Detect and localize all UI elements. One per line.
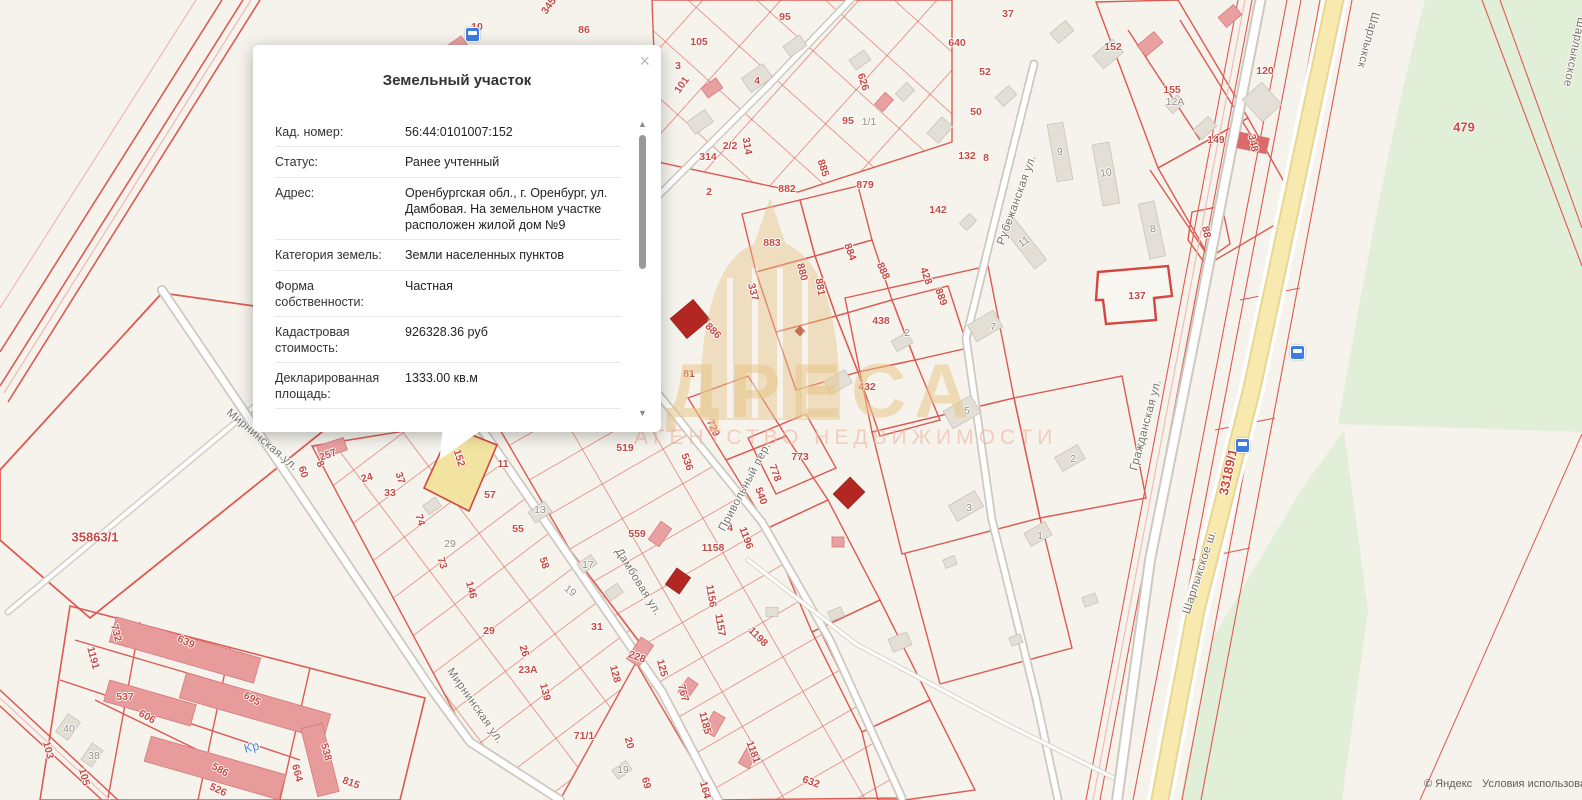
- field-value: 926328.36 руб: [405, 324, 621, 356]
- field-value: Частная: [405, 278, 621, 310]
- popup-field-row: Декларированная площадь:1333.00 кв.м: [275, 363, 621, 409]
- parcel-info-popup: Земельный участок × Кад. номер:56:44:010…: [253, 45, 661, 432]
- terms-link[interactable]: Условия использования: [1482, 778, 1582, 790]
- bus-stop-icon[interactable]: [1235, 438, 1250, 453]
- copyright-text: © Яндекс: [1424, 778, 1472, 790]
- popup-scrollbar[interactable]: ▲ ▼: [637, 119, 648, 418]
- map-attribution: © ЯндексУсловия использования: [1424, 778, 1582, 790]
- bus-stop-icon[interactable]: [465, 27, 480, 42]
- popup-field-row: Форма собственности:Частная: [275, 271, 621, 317]
- popup-field-list: Кад. номер:56:44:0101007:152Статус:Ранее…: [275, 117, 621, 409]
- field-value: 1333.00 кв.м: [405, 370, 621, 402]
- field-value: Ранее учтенный: [405, 154, 621, 170]
- field-label: Форма собственности:: [275, 278, 405, 310]
- popup-field-row: Статус:Ранее учтенный: [275, 147, 621, 177]
- field-label: Статус:: [275, 154, 405, 170]
- field-value: Оренбургская обл., г. Оренбург, ул. Дамб…: [405, 185, 621, 234]
- bus-stop-icon[interactable]: [1290, 345, 1305, 360]
- popup-pointer: [439, 428, 478, 464]
- close-icon[interactable]: ×: [639, 52, 650, 70]
- field-label: Кадастровая стоимость:: [275, 324, 405, 356]
- popup-field-row: Кад. номер:56:44:0101007:152: [275, 117, 621, 147]
- field-label: Адрес:: [275, 185, 405, 234]
- field-label: Категория земель:: [275, 247, 405, 263]
- cadastral-map-canvas[interactable]: [0, 0, 1582, 800]
- field-label: Кад. номер:: [275, 124, 405, 140]
- field-label: Декларированная площадь:: [275, 370, 405, 402]
- scroll-down-icon[interactable]: ▼: [637, 408, 648, 418]
- field-value: Земли населенных пунктов: [405, 247, 621, 263]
- map-viewport[interactable]: 3458610105310149562664037525013282/23143…: [0, 0, 1582, 800]
- popup-title: Земельный участок: [253, 45, 661, 89]
- popup-field-row: Категория земель:Земли населенных пункто…: [275, 240, 621, 270]
- field-value: 56:44:0101007:152: [405, 124, 621, 140]
- popup-field-row: Адрес:Оренбургская обл., г. Оренбург, ул…: [275, 178, 621, 241]
- scroll-up-icon[interactable]: ▲: [637, 119, 648, 129]
- popup-field-row: Кадастровая стоимость:926328.36 руб: [275, 317, 621, 363]
- scrollbar-thumb[interactable]: [639, 135, 646, 269]
